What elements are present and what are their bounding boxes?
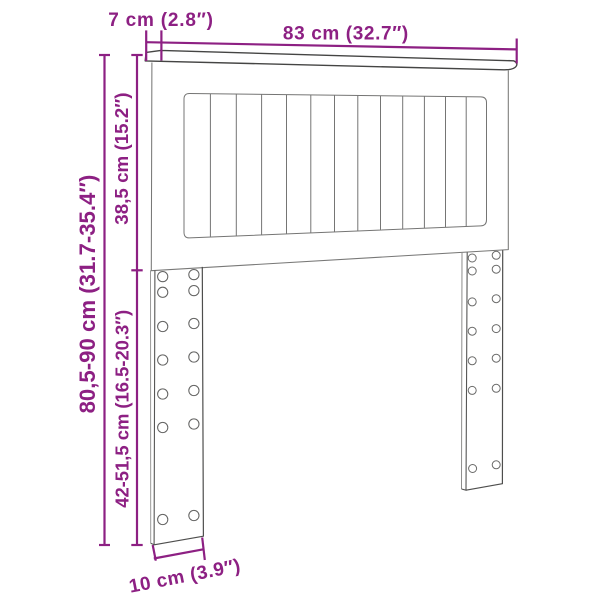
svg-text:38,5 cm (15.2″): 38,5 cm (15.2″) [111, 92, 132, 224]
svg-text:80,5-90 cm (31.7-35.4″): 80,5-90 cm (31.7-35.4″) [75, 175, 100, 414]
svg-text:7 cm (2.8″): 7 cm (2.8″) [108, 10, 214, 31]
svg-text:42-51,5 cm (16.5-20.3″): 42-51,5 cm (16.5-20.3″) [112, 310, 133, 508]
svg-text:83 cm (32.7″): 83 cm (32.7″) [283, 24, 409, 45]
